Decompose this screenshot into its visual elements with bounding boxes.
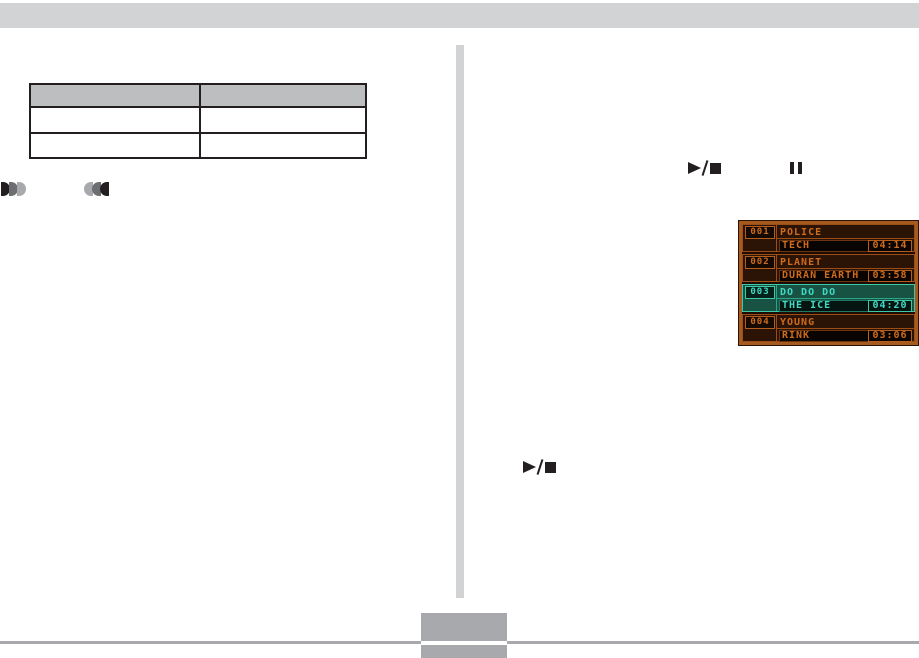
footer-rule-left	[0, 641, 421, 644]
table-row	[31, 108, 365, 134]
track-artist: DURAN EARTH	[779, 270, 873, 282]
track-mid-divider	[777, 238, 914, 239]
slash-icon	[537, 459, 544, 475]
track-list: 001 POLICE TECH 04:14 002 PLANET DURAN E…	[742, 224, 915, 342]
track-artist: RINK	[779, 330, 873, 342]
rw-disc	[100, 182, 109, 196]
track-title: YOUNG	[780, 317, 815, 328]
track-mid-divider	[777, 298, 914, 299]
page-number-box-lower	[421, 645, 507, 658]
track-title: POLICE	[780, 227, 822, 238]
track-title: DO DO DO	[780, 287, 836, 298]
play-triangle-icon	[523, 461, 536, 473]
track-row: 003 DO DO DO THE ICE 04:20	[742, 284, 915, 312]
play-stop-icon	[523, 459, 556, 475]
slash-icon	[702, 160, 709, 176]
track-artist: TECH	[779, 240, 873, 252]
fast-forward-icon	[1, 182, 25, 196]
pause-icon	[790, 162, 802, 174]
manual-page: 001 POLICE TECH 04:14 002 PLANET DURAN E…	[0, 0, 919, 658]
pause-bar	[798, 162, 802, 174]
track-number: 002	[745, 256, 775, 269]
ff-disc	[17, 182, 26, 196]
page-number-box	[421, 613, 507, 641]
footer-rule-right	[507, 641, 919, 644]
track-time: 04:20	[868, 300, 912, 312]
track-time: 04:14	[868, 240, 912, 252]
column-divider	[456, 45, 464, 598]
play-stop-icon	[688, 160, 721, 176]
spec-table	[29, 83, 367, 159]
track-row: 004 YOUNG RINK 03:06	[742, 314, 915, 342]
track-time: 03:06	[868, 330, 912, 342]
mp3-player-screenshot: 001 POLICE TECH 04:14 002 PLANET DURAN E…	[738, 220, 919, 346]
table-row	[31, 134, 365, 157]
play-triangle-icon	[688, 162, 701, 174]
track-mid-divider	[777, 268, 914, 269]
track-artist: THE ICE	[779, 300, 873, 312]
track-time: 03:58	[868, 270, 912, 282]
table-column-divider	[199, 85, 201, 157]
track-row: 001 POLICE TECH 04:14	[742, 224, 915, 252]
rewind-icon	[84, 182, 108, 196]
table-header-row	[31, 85, 365, 108]
pause-bar	[790, 162, 794, 174]
track-number: 004	[745, 316, 775, 329]
track-title: PLANET	[780, 257, 822, 268]
track-mid-divider	[777, 328, 914, 329]
stop-square-icon	[710, 163, 721, 174]
track-number: 001	[745, 226, 775, 239]
stop-square-icon	[545, 462, 556, 473]
page-header-bar	[0, 3, 919, 28]
track-number: 003	[745, 286, 775, 299]
track-row: 002 PLANET DURAN EARTH 03:58	[742, 254, 915, 282]
